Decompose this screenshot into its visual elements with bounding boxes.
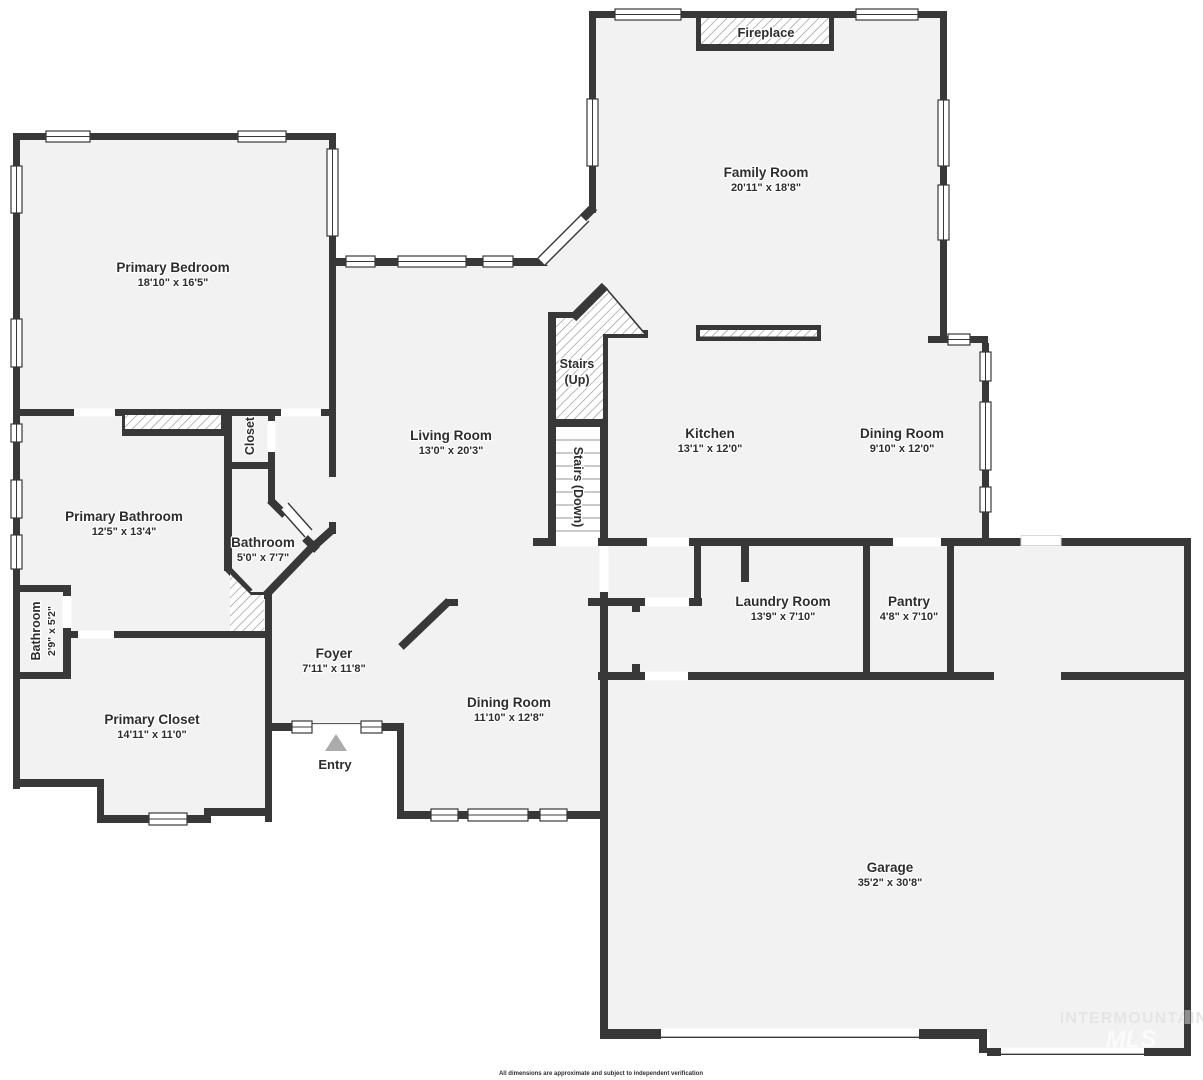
svg-text:20'11" x 18'8": 20'11" x 18'8"	[731, 182, 801, 194]
svg-text:(Up): (Up)	[565, 373, 590, 387]
svg-text:13'9" x 7'10": 13'9" x 7'10"	[751, 611, 816, 623]
svg-text:INTERMOUNTAIN: INTERMOUNTAIN	[1060, 1010, 1203, 1027]
svg-text:11'10" x 12'8": 11'10" x 12'8"	[474, 712, 544, 724]
svg-text:Laundry Room: Laundry Room	[735, 594, 830, 609]
svg-text:Primary Bathroom: Primary Bathroom	[65, 509, 183, 524]
svg-text:Living Room: Living Room	[410, 428, 492, 443]
svg-text:Dining Room: Dining Room	[860, 426, 944, 441]
svg-text:All dimensions are approximate: All dimensions are approximate and subje…	[499, 1071, 703, 1077]
svg-text:18'10" x 16'5": 18'10" x 16'5"	[138, 277, 209, 289]
svg-text:Pantry: Pantry	[888, 594, 931, 609]
svg-text:35'2" x 30'8": 35'2" x 30'8"	[858, 877, 923, 889]
svg-text:Closet: Closet	[243, 416, 257, 455]
svg-text:5'0" x 7'7": 5'0" x 7'7"	[237, 552, 289, 564]
svg-text:Stairs (Down): Stairs (Down)	[571, 447, 585, 528]
svg-text:Primary Closet: Primary Closet	[104, 712, 200, 727]
svg-text:Primary Bedroom: Primary Bedroom	[116, 260, 229, 275]
svg-text:2'9" x 5'2": 2'9" x 5'2"	[46, 606, 58, 656]
svg-text:13'1" x 12'0": 13'1" x 12'0"	[678, 443, 743, 455]
svg-text:Entry: Entry	[318, 757, 352, 772]
svg-text:Foyer: Foyer	[316, 646, 354, 661]
svg-text:Stairs: Stairs	[560, 357, 595, 371]
svg-text:Kitchen: Kitchen	[685, 426, 735, 441]
svg-text:7'11" x 11'8": 7'11" x 11'8"	[302, 663, 365, 675]
svg-text:Garage: Garage	[867, 860, 914, 875]
svg-text:4'8" x 7'10": 4'8" x 7'10"	[880, 611, 938, 623]
svg-text:14'11" x 11'0": 14'11" x 11'0"	[117, 729, 187, 741]
svg-text:Family Room: Family Room	[724, 165, 809, 180]
svg-text:13'0" x 20'3": 13'0" x 20'3"	[419, 445, 484, 457]
svg-text:Dining Room: Dining Room	[467, 695, 551, 710]
svg-text:Bathroom: Bathroom	[29, 601, 43, 660]
svg-text:9'10" x 12'0": 9'10" x 12'0"	[870, 443, 935, 455]
svg-text:12'5" x 13'4": 12'5" x 13'4"	[92, 526, 157, 538]
svg-text:Bathroom: Bathroom	[231, 535, 295, 550]
svg-text:Fireplace: Fireplace	[737, 25, 794, 40]
